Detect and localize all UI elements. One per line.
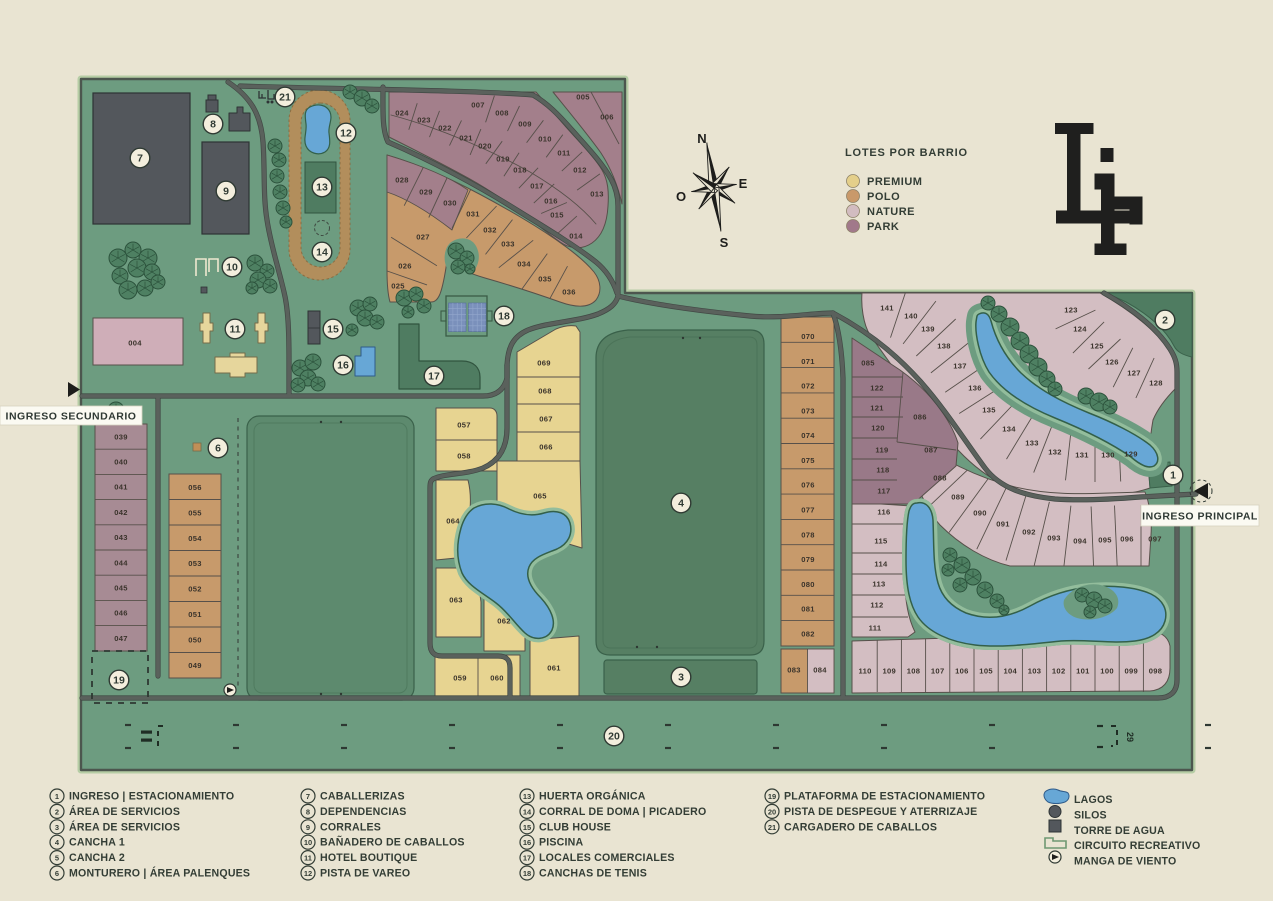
svg-text:081: 081 [801,605,815,614]
svg-text:087: 087 [924,446,938,455]
svg-text:062: 062 [497,617,511,626]
svg-text:NATURE: NATURE [867,206,915,218]
svg-text:086: 086 [913,413,927,422]
svg-text:050: 050 [188,635,202,644]
svg-text:6: 6 [55,869,59,878]
svg-text:12: 12 [340,128,352,140]
svg-text:4: 4 [678,498,684,510]
svg-text:11: 11 [304,854,312,863]
svg-text:BAÑADERO DE CABALLOS: BAÑADERO DE CABALLOS [320,836,465,849]
svg-text:011: 011 [557,149,571,158]
svg-text:16: 16 [337,360,349,372]
svg-text:131: 131 [1075,451,1089,460]
svg-text:15: 15 [327,324,339,336]
svg-text:058: 058 [457,452,471,461]
svg-text:17: 17 [428,371,440,383]
svg-text:120: 120 [871,424,885,433]
svg-text:INGRESO SECUNDARIO: INGRESO SECUNDARIO [6,411,137,423]
svg-text:090: 090 [973,509,987,518]
svg-text:5: 5 [55,854,59,863]
svg-text:128: 128 [1149,379,1163,388]
svg-text:077: 077 [801,505,815,514]
svg-text:2: 2 [1162,315,1168,327]
svg-text:046: 046 [114,609,128,618]
svg-text:20: 20 [608,731,620,743]
svg-text:111: 111 [869,624,882,633]
svg-text:018: 018 [513,166,527,175]
svg-text:O: O [676,189,686,204]
svg-text:3: 3 [678,672,684,684]
svg-text:007: 007 [471,101,485,110]
svg-text:CORRALES: CORRALES [320,821,381,833]
svg-text:HOTEL BOUTIQUE: HOTEL BOUTIQUE [320,852,417,864]
svg-text:PLATAFORMA DE ESTACIONAMIENTO: PLATAFORMA DE ESTACIONAMIENTO [784,791,985,803]
svg-text:116: 116 [877,508,890,517]
svg-text:ÁREA DE SERVICIOS: ÁREA DE SERVICIOS [69,805,180,818]
svg-text:017: 017 [530,182,544,191]
svg-text:097: 097 [1148,535,1162,544]
svg-text:025: 025 [391,282,405,291]
svg-text:054: 054 [188,534,202,543]
svg-text:PISTA DE DESPEGUE Y ATERRIZAJE: PISTA DE DESPEGUE Y ATERRIZAJE [784,806,977,818]
svg-text:113: 113 [872,580,885,589]
svg-text:044: 044 [114,558,128,567]
svg-text:118: 118 [876,466,889,475]
svg-text:053: 053 [188,559,202,568]
svg-text:SILOS: SILOS [1074,809,1107,821]
svg-text:POLO: POLO [867,191,900,203]
svg-text:125: 125 [1090,342,1104,351]
svg-text:CLUB HOUSE: CLUB HOUSE [539,821,611,833]
svg-text:082: 082 [801,629,815,638]
svg-text:140: 140 [904,312,918,321]
svg-text:019: 019 [496,155,510,164]
svg-text:098: 098 [1149,667,1163,676]
svg-text:130: 130 [1101,451,1115,460]
svg-text:035: 035 [538,275,552,284]
svg-text:008: 008 [495,109,509,118]
svg-text:028: 028 [395,176,409,185]
svg-text:MANGA DE VIENTO: MANGA DE VIENTO [1074,856,1176,868]
svg-text:7: 7 [137,153,143,165]
svg-text:134: 134 [1002,425,1016,434]
svg-text:126: 126 [1105,358,1119,367]
svg-text:110: 110 [859,667,872,676]
svg-text:060: 060 [490,674,504,683]
svg-text:093: 093 [1047,534,1061,543]
svg-text:051: 051 [188,610,202,619]
svg-text:114: 114 [874,560,888,569]
svg-text:14: 14 [316,247,328,259]
svg-text:S: S [720,235,729,250]
svg-text:127: 127 [1127,369,1141,378]
svg-text:010: 010 [538,135,552,144]
svg-text:100: 100 [1100,667,1114,676]
svg-text:19: 19 [113,675,125,687]
svg-text:13: 13 [523,792,531,801]
svg-text:012: 012 [573,166,587,175]
svg-text:096: 096 [1120,535,1134,544]
svg-text:MONTURERO | ÁREA PALENQUES: MONTURERO | ÁREA PALENQUES [69,867,250,880]
svg-text:CANCHAS DE TENIS: CANCHAS DE TENIS [539,868,647,880]
svg-text:094: 094 [1073,537,1087,546]
svg-text:CABALLERIZAS: CABALLERIZAS [320,791,405,803]
svg-text:045: 045 [114,584,128,593]
svg-text:020: 020 [478,142,492,151]
svg-text:064: 064 [446,517,460,526]
svg-text:137: 137 [953,362,967,371]
svg-text:076: 076 [801,481,815,490]
svg-text:049: 049 [188,661,202,670]
svg-text:LOTES POR BARRIO: LOTES POR BARRIO [845,147,968,159]
svg-text:068: 068 [538,387,552,396]
svg-text:084: 084 [813,666,827,675]
svg-text:039: 039 [114,432,128,441]
svg-text:079: 079 [801,555,815,564]
svg-text:PREMIUM: PREMIUM [867,176,922,188]
svg-text:055: 055 [188,508,202,517]
svg-text:030: 030 [443,199,457,208]
svg-text:10: 10 [226,262,238,274]
svg-text:117: 117 [877,487,890,496]
svg-text:078: 078 [801,530,815,539]
svg-text:027: 027 [416,233,430,242]
svg-text:1: 1 [1170,470,1176,482]
svg-text:033: 033 [501,240,515,249]
svg-text:034: 034 [517,260,531,269]
svg-text:10: 10 [304,838,312,847]
svg-text:16: 16 [523,838,531,847]
svg-text:083: 083 [787,666,801,675]
svg-text:11: 11 [229,324,240,336]
svg-text:107: 107 [931,667,945,676]
svg-text:089: 089 [951,493,965,502]
svg-text:LAGOS: LAGOS [1074,794,1113,806]
svg-text:092: 092 [1022,528,1036,537]
svg-text:023: 023 [417,116,431,125]
svg-text:CORRAL DE DOMA | PICADERO: CORRAL DE DOMA | PICADERO [539,806,706,818]
svg-text:INGRESO | ESTACIONAMIENTO: INGRESO | ESTACIONAMIENTO [69,791,234,803]
svg-text:136: 136 [968,384,982,393]
svg-text:8: 8 [210,119,216,131]
svg-text:105: 105 [979,667,993,676]
svg-text:013: 013 [590,190,604,199]
svg-text:20: 20 [768,807,776,816]
svg-text:18: 18 [523,869,531,878]
svg-text:21: 21 [279,92,291,104]
svg-text:069: 069 [537,359,551,368]
svg-text:138: 138 [937,342,951,351]
svg-text:PISCINA: PISCINA [539,837,584,849]
svg-text:061: 061 [547,664,561,673]
svg-text:043: 043 [114,533,128,542]
svg-text:8: 8 [306,807,310,816]
svg-text:124: 124 [1073,325,1087,334]
svg-text:133: 133 [1025,439,1039,448]
svg-text:066: 066 [539,443,553,452]
svg-text:071: 071 [801,357,815,366]
svg-text:109: 109 [883,667,897,676]
svg-text:102: 102 [1052,667,1066,676]
svg-text:135: 135 [982,406,996,415]
svg-text:7: 7 [306,792,310,801]
svg-text:103: 103 [1028,667,1042,676]
svg-text:042: 042 [114,508,128,517]
svg-text:ÁREA DE SERVICIOS: ÁREA DE SERVICIOS [69,820,180,833]
svg-text:065: 065 [533,492,547,501]
svg-text:085: 085 [861,359,875,368]
svg-text:CARGADERO DE CABALLOS: CARGADERO DE CABALLOS [784,821,937,833]
svg-text:CIRCUITO RECREATIVO: CIRCUITO RECREATIVO [1074,840,1200,852]
svg-text:9: 9 [223,186,229,198]
svg-text:101: 101 [1076,667,1090,676]
svg-text:032: 032 [483,226,497,235]
svg-text:LOCALES COMERCIALES: LOCALES COMERCIALES [539,852,675,864]
svg-text:29: 29 [1125,732,1135,742]
svg-text:059: 059 [453,674,467,683]
svg-text:091: 091 [996,520,1010,529]
svg-text:009: 009 [518,120,532,129]
svg-text:CANCHA 1: CANCHA 1 [69,837,125,849]
svg-text:115: 115 [874,537,888,546]
svg-text:121: 121 [870,404,884,413]
svg-text:063: 063 [449,596,463,605]
svg-text:088: 088 [933,474,947,483]
svg-text:057: 057 [457,421,471,430]
svg-text:036: 036 [562,288,576,297]
svg-text:031: 031 [466,210,480,219]
svg-text:PARK: PARK [867,221,899,233]
svg-text:122: 122 [870,384,884,393]
svg-text:21: 21 [768,823,776,832]
svg-text:021: 021 [459,134,473,143]
svg-text:106: 106 [955,667,969,676]
svg-text:119: 119 [875,446,888,455]
svg-text:070: 070 [801,332,815,341]
svg-text:073: 073 [801,406,815,415]
svg-text:047: 047 [114,634,128,643]
svg-text:2: 2 [55,807,59,816]
svg-text:016: 016 [544,197,558,206]
svg-text:129: 129 [1124,450,1138,459]
svg-text:004: 004 [128,339,142,348]
svg-text:072: 072 [801,382,815,391]
svg-text:1: 1 [55,792,59,801]
svg-text:3: 3 [55,823,59,832]
svg-text:112: 112 [870,601,883,610]
svg-text:DEPENDENCIAS: DEPENDENCIAS [320,806,407,818]
svg-text:104: 104 [1004,667,1018,676]
svg-text:067: 067 [539,415,553,424]
svg-text:015: 015 [550,211,564,220]
svg-text:132: 132 [1048,448,1062,457]
svg-text:HUERTA ORGÁNICA: HUERTA ORGÁNICA [539,790,646,803]
svg-text:14: 14 [523,807,532,816]
svg-text:15: 15 [523,823,531,832]
svg-text:19: 19 [768,792,776,801]
svg-text:PISTA DE VAREO: PISTA DE VAREO [320,868,410,880]
svg-text:095: 095 [1098,536,1112,545]
svg-text:13: 13 [316,182,328,194]
svg-text:108: 108 [907,667,921,676]
svg-text:040: 040 [114,458,128,467]
svg-text:N: N [697,131,706,146]
svg-text:026: 026 [398,262,412,271]
svg-text:18: 18 [498,311,510,323]
svg-text:075: 075 [801,456,815,465]
svg-text:024: 024 [395,109,409,118]
svg-text:141: 141 [880,304,894,313]
svg-text:074: 074 [801,431,815,440]
svg-text:056: 056 [188,483,202,492]
svg-text:014: 014 [569,232,583,241]
svg-text:9: 9 [306,823,310,832]
svg-text:022: 022 [438,124,452,133]
svg-text:17: 17 [523,854,531,863]
svg-text:12: 12 [304,869,312,878]
svg-text:139: 139 [921,325,935,334]
svg-text:029: 029 [419,188,433,197]
svg-text:TORRE DE AGUA: TORRE DE AGUA [1074,825,1165,837]
svg-text:005: 005 [576,93,590,102]
svg-text:080: 080 [801,580,815,589]
svg-text:INGRESO PRINCIPAL: INGRESO PRINCIPAL [1142,511,1258,523]
svg-text:123: 123 [1064,306,1078,315]
svg-text:041: 041 [114,483,128,492]
svg-text:CANCHA 2: CANCHA 2 [69,852,125,864]
svg-text:006: 006 [600,113,614,122]
svg-text:E: E [739,176,748,191]
svg-text:6: 6 [215,443,221,455]
svg-text:052: 052 [188,585,202,594]
svg-text:099: 099 [1125,667,1139,676]
